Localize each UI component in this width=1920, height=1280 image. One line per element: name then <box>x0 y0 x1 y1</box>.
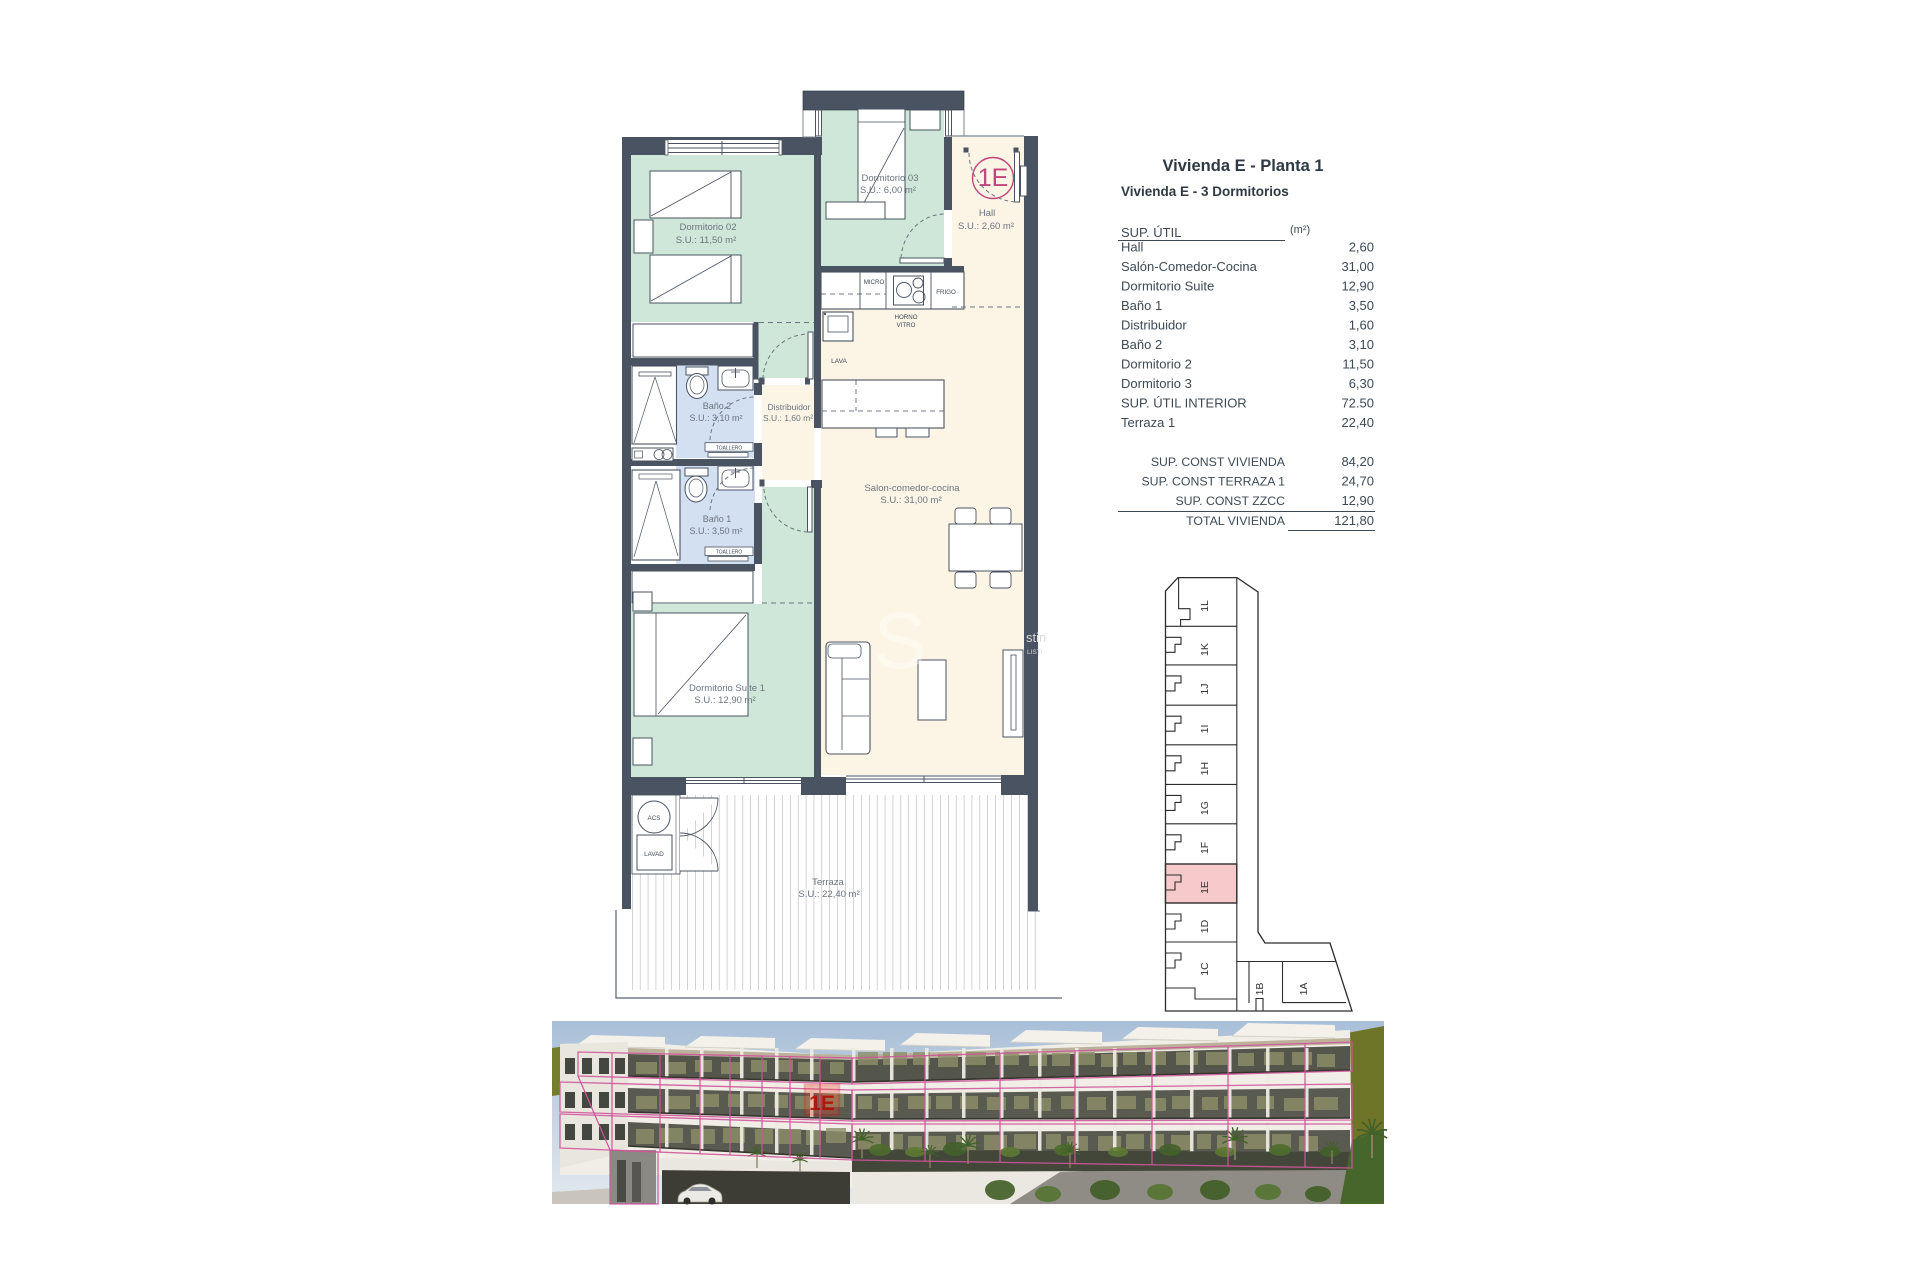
svg-text:TOTAL VIVIENDA: TOTAL VIVIENDA <box>1186 514 1286 528</box>
svg-text:HORNO: HORNO <box>894 314 917 321</box>
svg-text:12,90: 12,90 <box>1341 279 1374 294</box>
svg-text:1E: 1E <box>978 164 1009 192</box>
svg-text:3,10: 3,10 <box>1349 337 1374 352</box>
svg-text:LAVA: LAVA <box>831 358 847 365</box>
svg-text:S.U.: 31,00 m²: S.U.: 31,00 m² <box>880 495 941 506</box>
svg-text:(m²): (m²) <box>1290 224 1310 236</box>
svg-text:TOALLERO: TOALLERO <box>716 446 743 452</box>
svg-text:S.U.: 6,00 m²: S.U.: 6,00 m² <box>860 185 916 196</box>
svg-text:Dormitorio 3: Dormitorio 3 <box>1121 376 1192 391</box>
svg-text:MICRO: MICRO <box>864 279 885 286</box>
svg-text:SUP. ÚTIL INTERIOR: SUP. ÚTIL INTERIOR <box>1121 396 1247 411</box>
svg-text:SUP. CONST TERRAZA 1: SUP. CONST TERRAZA 1 <box>1141 475 1285 489</box>
svg-text:11,50: 11,50 <box>1342 357 1374 372</box>
svg-text:1B: 1B <box>1254 983 1266 996</box>
svg-text:1G: 1G <box>1199 801 1211 815</box>
svg-text:LAVAD: LAVAD <box>644 851 664 858</box>
svg-text:1A: 1A <box>1298 983 1310 996</box>
svg-text:1D: 1D <box>1199 919 1211 933</box>
svg-text:S.U.: 12,90 m²: S.U.: 12,90 m² <box>694 695 755 706</box>
svg-text:121,80: 121,80 <box>1334 513 1374 528</box>
svg-text:31,00: 31,00 <box>1341 259 1374 274</box>
svg-text:12,90: 12,90 <box>1341 493 1374 508</box>
svg-text:Vivienda E - 3 Dormitorios: Vivienda E - 3 Dormitorios <box>1121 184 1289 199</box>
svg-text:Distribuidor: Distribuidor <box>768 402 811 412</box>
svg-text:1E: 1E <box>809 1092 835 1115</box>
svg-text:Baño 1: Baño 1 <box>703 514 732 524</box>
svg-text:Vivienda E - Planta 1: Vivienda E - Planta 1 <box>1162 157 1323 175</box>
svg-text:Terraza 1: Terraza 1 <box>1121 415 1175 430</box>
svg-text:Baño 2: Baño 2 <box>703 401 732 411</box>
svg-text:Dormitorio Suite 1: Dormitorio Suite 1 <box>689 683 765 694</box>
svg-text:1,60: 1,60 <box>1349 318 1374 333</box>
svg-text:VITRO: VITRO <box>897 322 916 329</box>
svg-text:Salon-comedor-cocina: Salon-comedor-cocina <box>864 483 960 494</box>
svg-text:TOALLERO: TOALLERO <box>716 550 743 556</box>
svg-text:Terraza: Terraza <box>812 877 844 888</box>
svg-text:22,40: 22,40 <box>1341 415 1374 430</box>
svg-text:84,20: 84,20 <box>1341 454 1374 469</box>
svg-text:S: S <box>873 596 926 685</box>
svg-text:1J: 1J <box>1199 684 1211 695</box>
svg-text:1H: 1H <box>1199 762 1211 775</box>
svg-text:SUP. ÚTIL: SUP. ÚTIL <box>1121 225 1181 240</box>
svg-text:Dormitorio 02: Dormitorio 02 <box>679 222 736 233</box>
svg-text:1L: 1L <box>1199 600 1211 612</box>
svg-text:Hall: Hall <box>1121 240 1144 255</box>
svg-text:S.U.: 11,50 m²: S.U.: 11,50 m² <box>676 235 737 246</box>
svg-text:S.U.: 1,60 m²: S.U.: 1,60 m² <box>763 413 813 423</box>
svg-text:Salón-Comedor-Cocina: Salón-Comedor-Cocina <box>1121 259 1258 274</box>
svg-text:S.U.: 3,10 m²: S.U.: 3,10 m² <box>689 413 742 423</box>
svg-text:SUP. CONST ZZCC: SUP. CONST ZZCC <box>1175 494 1285 508</box>
svg-text:2,60: 2,60 <box>1349 240 1374 255</box>
svg-text:1I: 1I <box>1199 725 1211 734</box>
svg-text:stin: stin <box>1026 630 1046 645</box>
svg-text:S.U.: 3,50 m²: S.U.: 3,50 m² <box>689 526 742 536</box>
svg-text:Baño 1: Baño 1 <box>1121 298 1162 313</box>
svg-text:72.50: 72.50 <box>1341 396 1374 411</box>
svg-text:S.U.: 2,60 m²: S.U.: 2,60 m² <box>958 221 1014 232</box>
svg-text:Hall: Hall <box>979 208 995 219</box>
svg-text:Dormitorio Suite: Dormitorio Suite <box>1121 279 1214 294</box>
svg-text:24,70: 24,70 <box>1341 474 1374 489</box>
svg-text:6,30: 6,30 <box>1349 376 1374 391</box>
svg-text:1C: 1C <box>1199 962 1211 976</box>
svg-text:Distribuidor: Distribuidor <box>1121 318 1187 333</box>
svg-text:S.U.: 22,40 m²: S.U.: 22,40 m² <box>798 889 859 900</box>
svg-text:Baño 2: Baño 2 <box>1121 337 1162 352</box>
svg-text:1K: 1K <box>1199 643 1211 656</box>
svg-text:ACS: ACS <box>648 815 661 822</box>
svg-text:FRIGO: FRIGO <box>936 289 956 296</box>
svg-text:1E: 1E <box>1199 881 1211 894</box>
svg-text:LISTI: LISTI <box>1027 649 1043 656</box>
svg-text:3,50: 3,50 <box>1349 298 1374 313</box>
svg-text:Dormitorio 2: Dormitorio 2 <box>1121 357 1192 372</box>
svg-text:1F: 1F <box>1199 842 1211 854</box>
svg-text:Dormitorio 03: Dormitorio 03 <box>861 173 918 184</box>
svg-text:SUP. CONST VIVIENDA: SUP. CONST VIVIENDA <box>1151 455 1286 469</box>
